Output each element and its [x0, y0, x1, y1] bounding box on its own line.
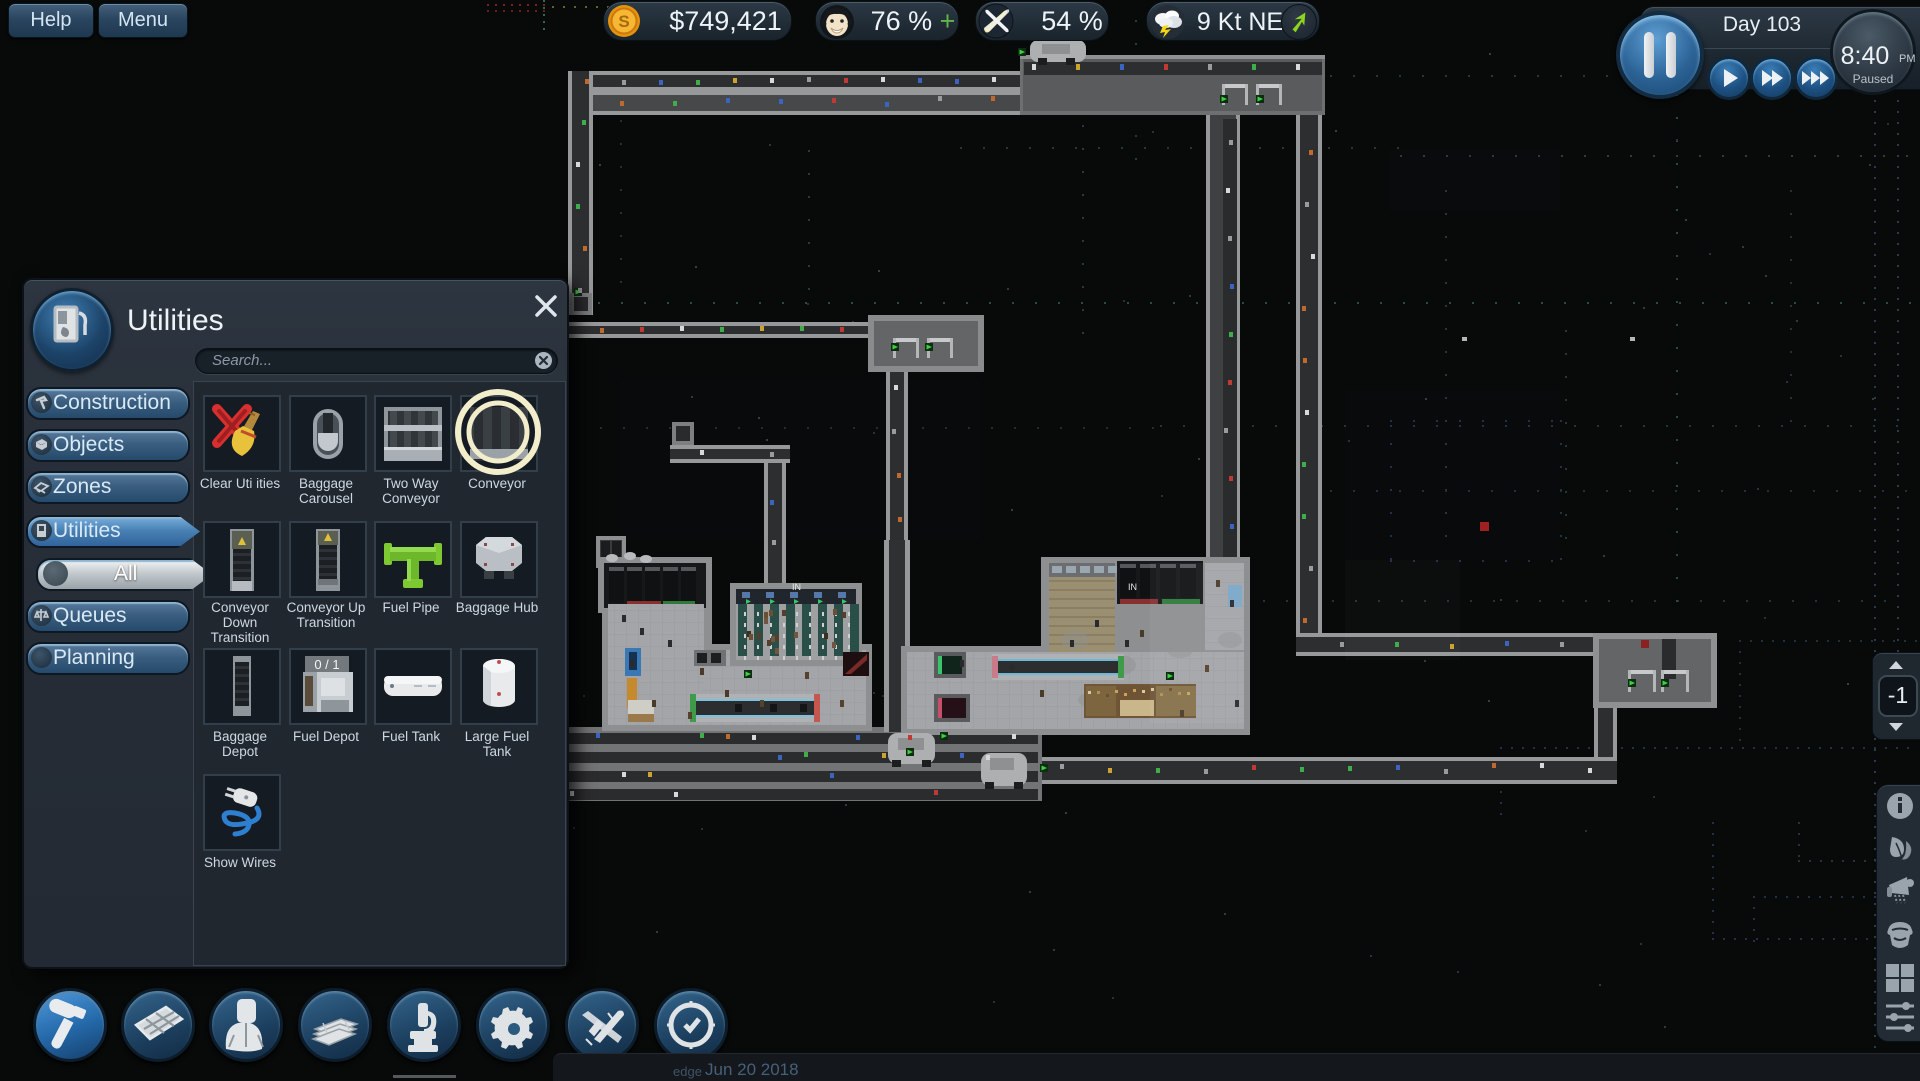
svg-text:IN: IN: [1128, 582, 1137, 592]
svg-text:S: S: [618, 12, 629, 31]
svg-text:0 / 1: 0 / 1: [314, 657, 339, 672]
svg-text:IN: IN: [792, 582, 801, 592]
